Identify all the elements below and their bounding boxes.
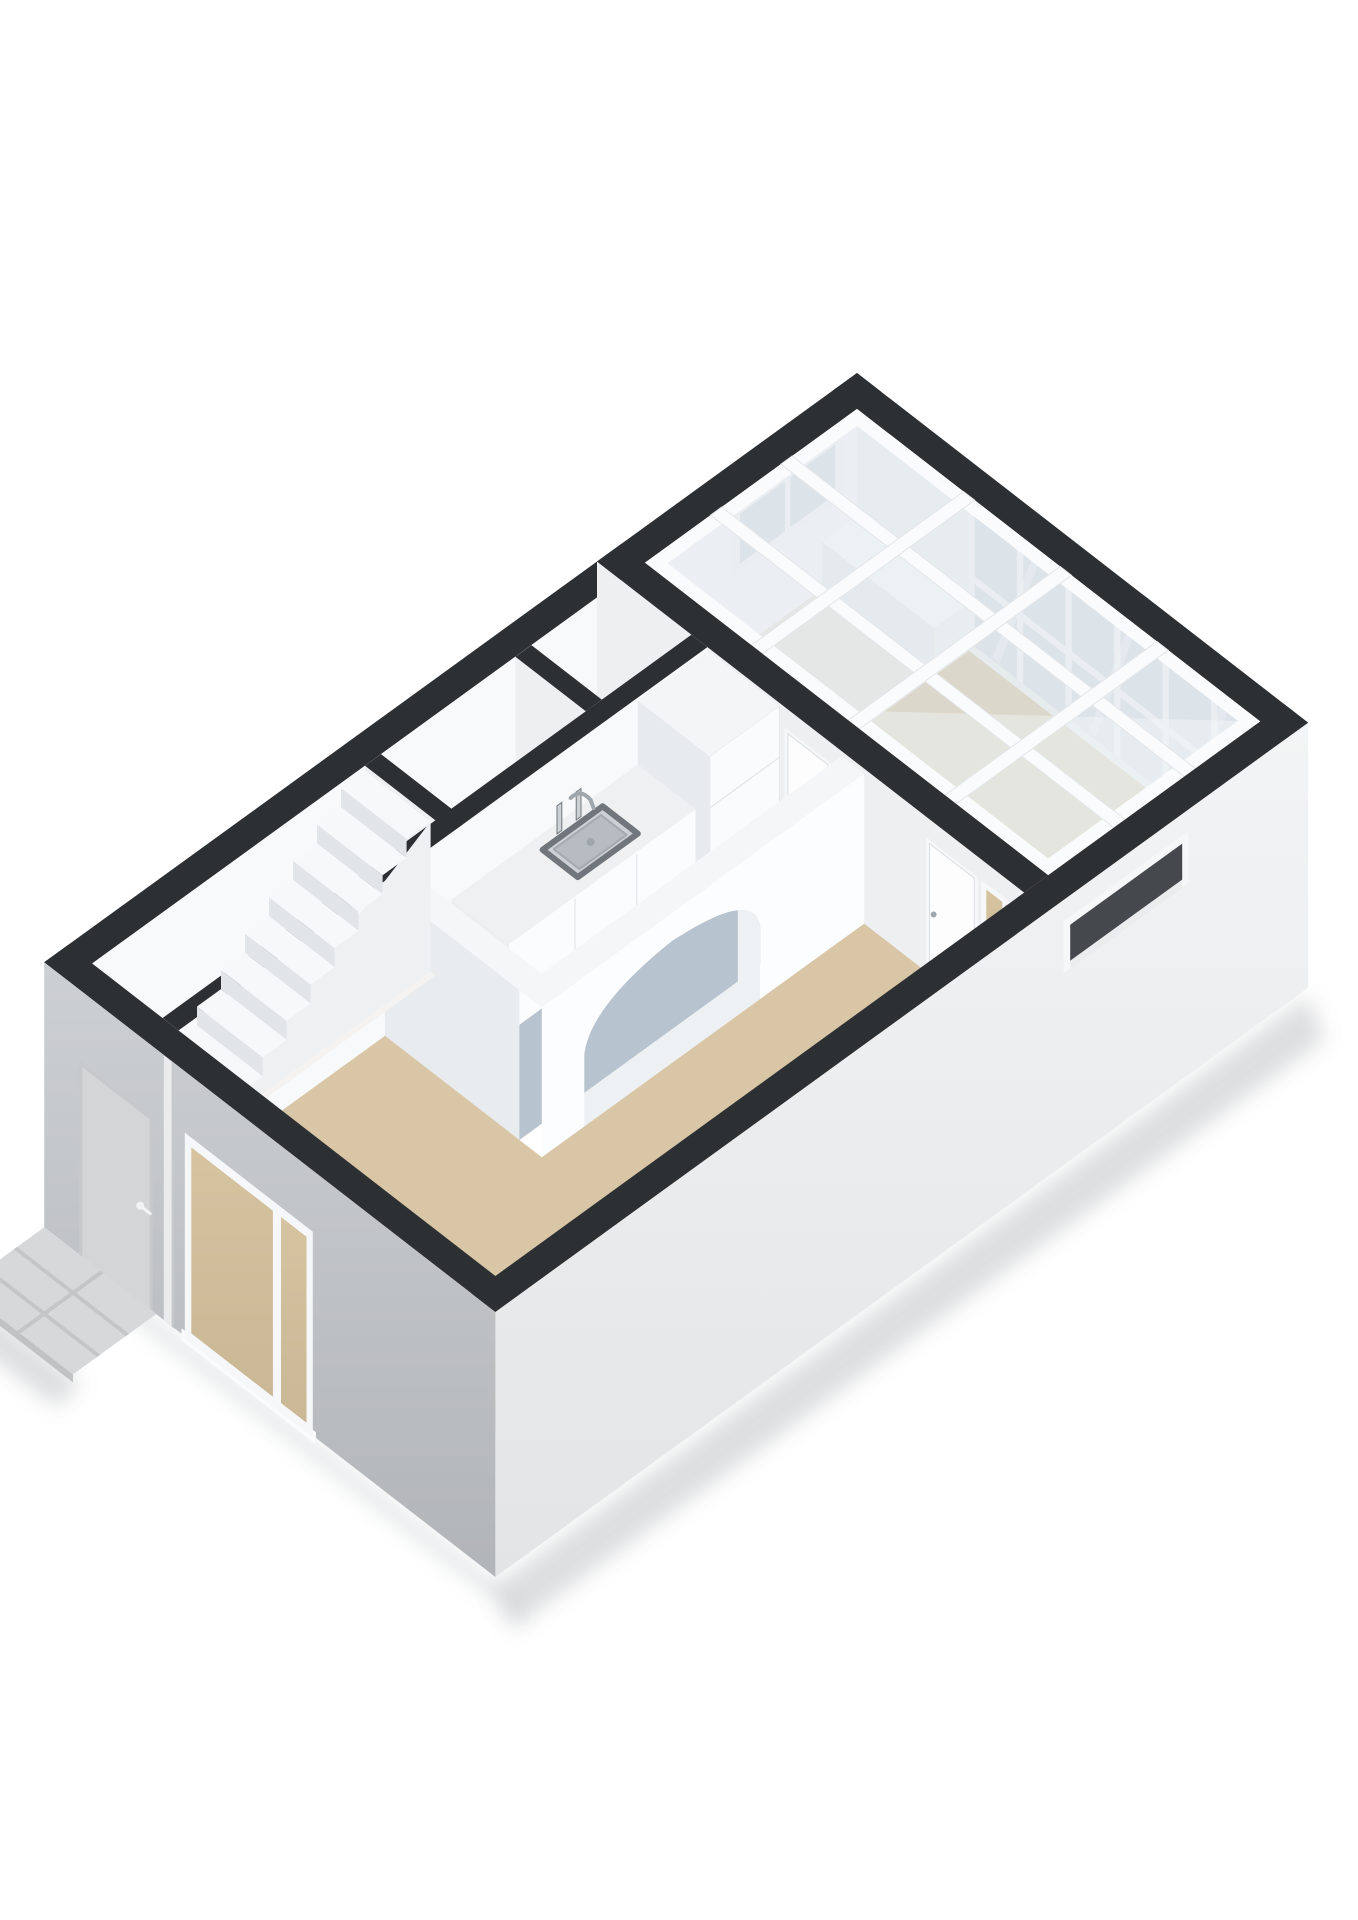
front-window-mullion <box>273 1211 281 1403</box>
garden-door-handle <box>931 912 937 918</box>
drain-pipe <box>164 1056 172 1327</box>
floorplan-3d-render <box>0 0 1358 1920</box>
sink-drain <box>587 838 595 846</box>
faucet-handle-2 <box>557 802 562 834</box>
floorplan-page <box>0 0 1358 1920</box>
front-window-glass-right <box>281 1217 307 1423</box>
drain-pipe-shade <box>172 1062 174 1329</box>
